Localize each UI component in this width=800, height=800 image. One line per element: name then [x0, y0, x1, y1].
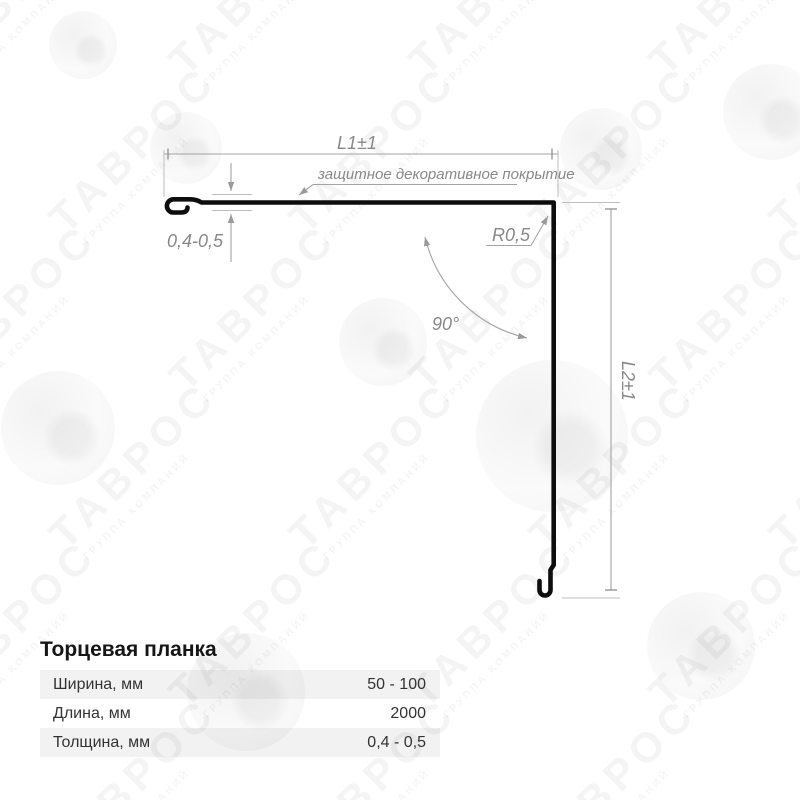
page: ТАВРОСГРУППА КОМПАНИЙТАВРОСГРУППА КОМПАН…	[0, 0, 800, 800]
spec-label: Толщина, мм	[40, 734, 150, 752]
spec-row-length: Длина, мм 2000	[40, 699, 440, 728]
thickness-label: 0,4-0,5	[167, 231, 224, 251]
profile-outline	[167, 199, 554, 595]
spec-label: Ширина, мм	[40, 676, 143, 694]
radius-label: R0,5	[492, 225, 531, 245]
spec-row-thickness: Толщина, мм 0,4 - 0,5	[40, 728, 440, 757]
spec-value: 2000	[390, 705, 440, 723]
coating-leader-line	[299, 185, 517, 196]
product-title: Торцевая планка	[40, 638, 217, 662]
spec-label: Длина, мм	[40, 705, 131, 723]
angle-label: 90°	[432, 314, 459, 334]
spec-table: Ширина, мм 50 - 100 Длина, мм 2000 Толщи…	[40, 670, 440, 757]
coating-label: защитное декоративное покрытие	[317, 166, 575, 183]
spec-row-width: Ширина, мм 50 - 100	[40, 670, 440, 699]
l1-dim-label: L1±1	[337, 133, 377, 153]
l2-dim-label: L2±1	[618, 361, 638, 401]
spec-value: 50 - 100	[367, 676, 440, 694]
spec-value: 0,4 - 0,5	[367, 734, 440, 752]
